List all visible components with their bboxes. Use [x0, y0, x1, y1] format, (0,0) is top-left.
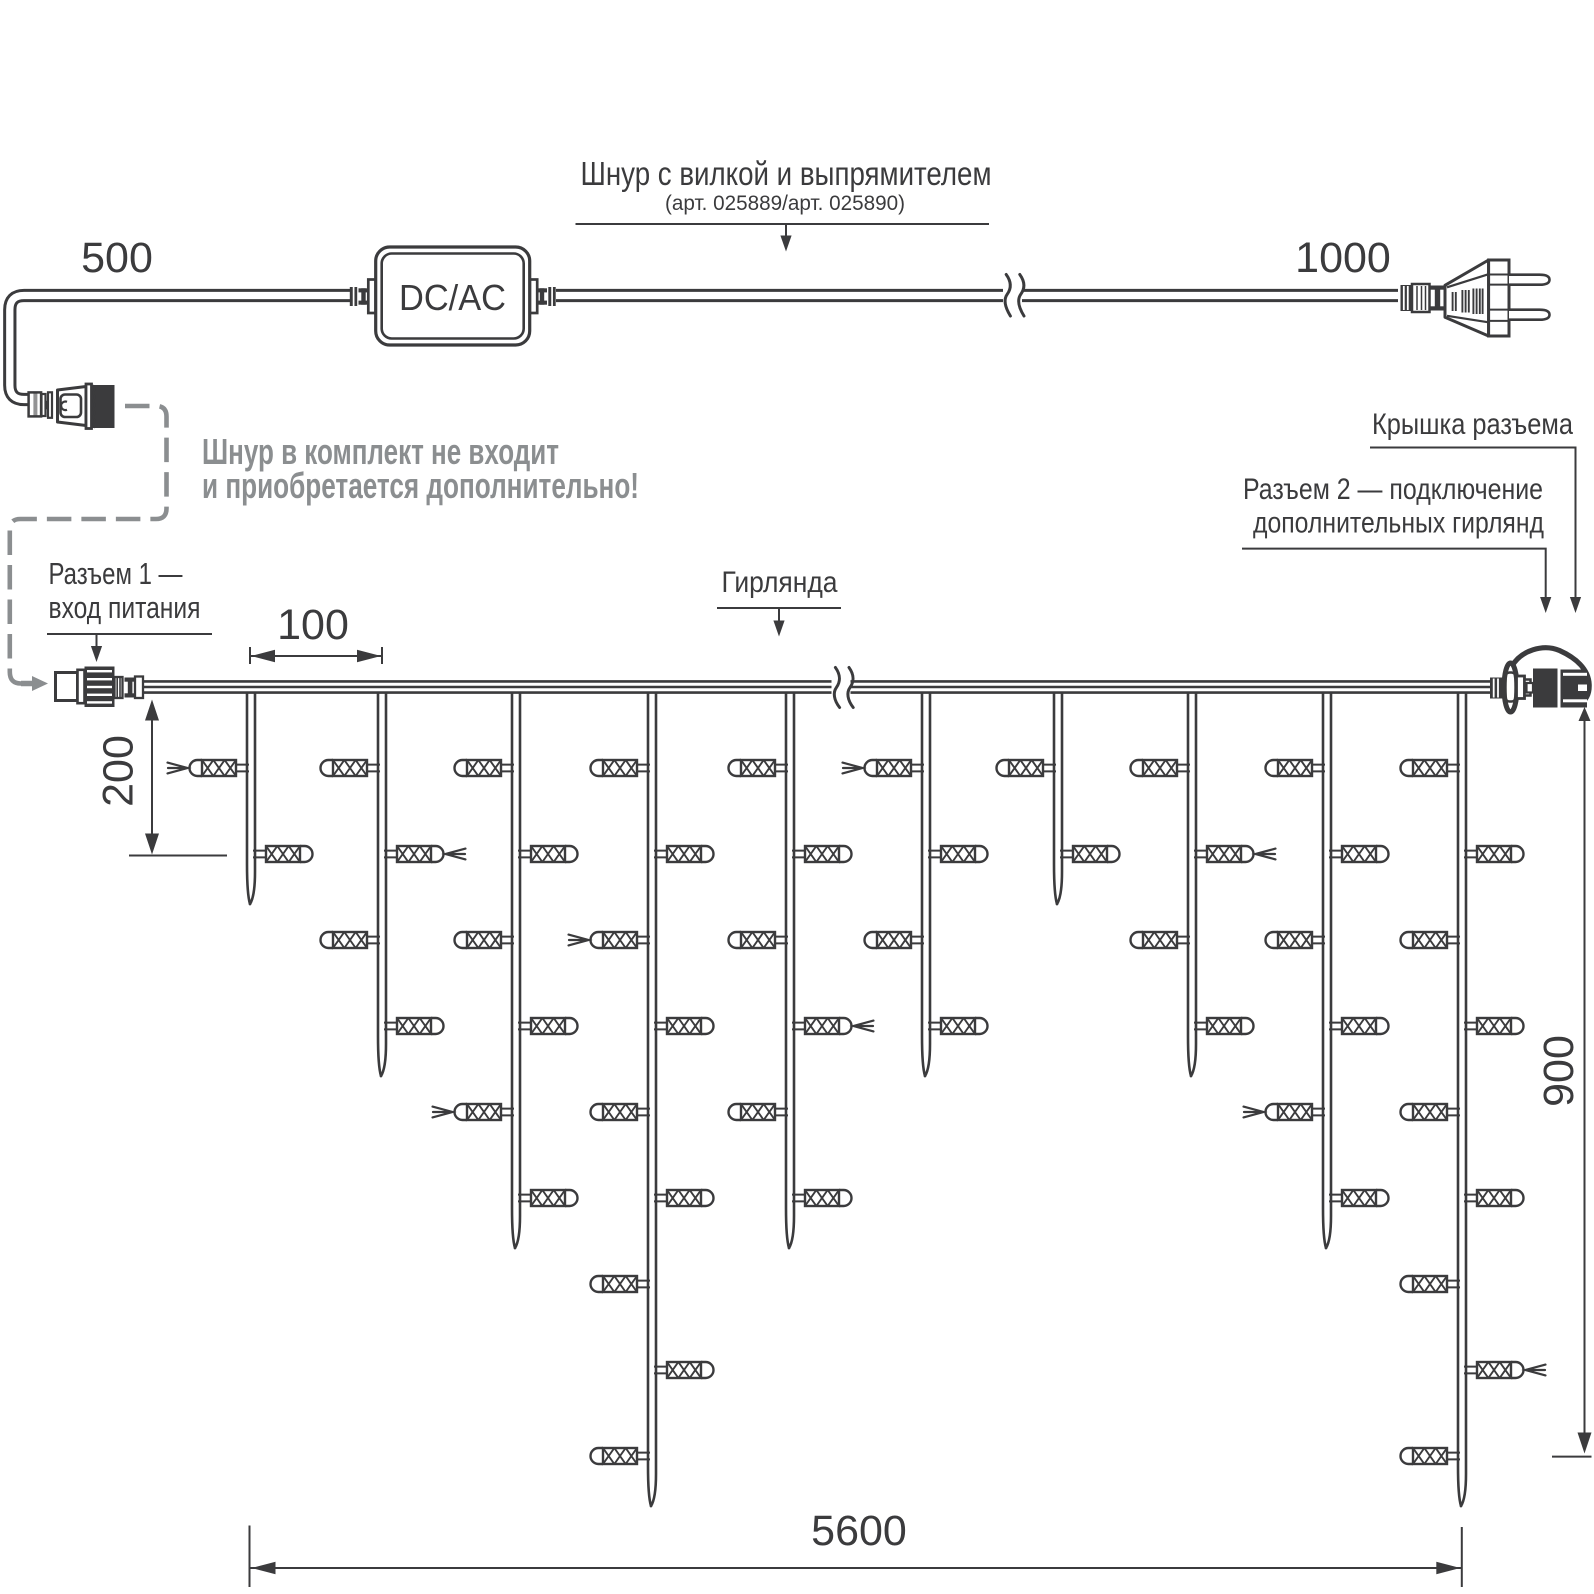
svg-text:вход питания: вход питания [49, 590, 201, 625]
svg-text:Гирлянда: Гирлянда [722, 566, 838, 599]
svg-text:1000: 1000 [1295, 234, 1391, 282]
svg-text:500: 500 [81, 234, 153, 282]
svg-text:900: 900 [1535, 1035, 1583, 1107]
svg-text:Крышка разъема: Крышка разъема [1372, 408, 1573, 441]
svg-text:и приобретается дополнительно!: и приобретается дополнительно! [202, 465, 639, 506]
svg-text:Шнур с вилкой и выпрямителем: Шнур с вилкой и выпрямителем [581, 155, 992, 192]
svg-text:5600: 5600 [811, 1507, 907, 1555]
svg-text:100: 100 [277, 601, 349, 649]
svg-text:(арт. 025889/арт. 025890): (арт. 025889/арт. 025890) [665, 192, 905, 215]
svg-text:дополнительных гирлянд: дополнительных гирлянд [1253, 507, 1544, 540]
svg-text:200: 200 [95, 735, 143, 807]
svg-text:Разъем 1 —: Разъем 1 — [49, 556, 183, 591]
svg-text:DC/AC: DC/AC [399, 277, 506, 318]
svg-text:Разъем 2 — подключение: Разъем 2 — подключение [1243, 473, 1543, 506]
